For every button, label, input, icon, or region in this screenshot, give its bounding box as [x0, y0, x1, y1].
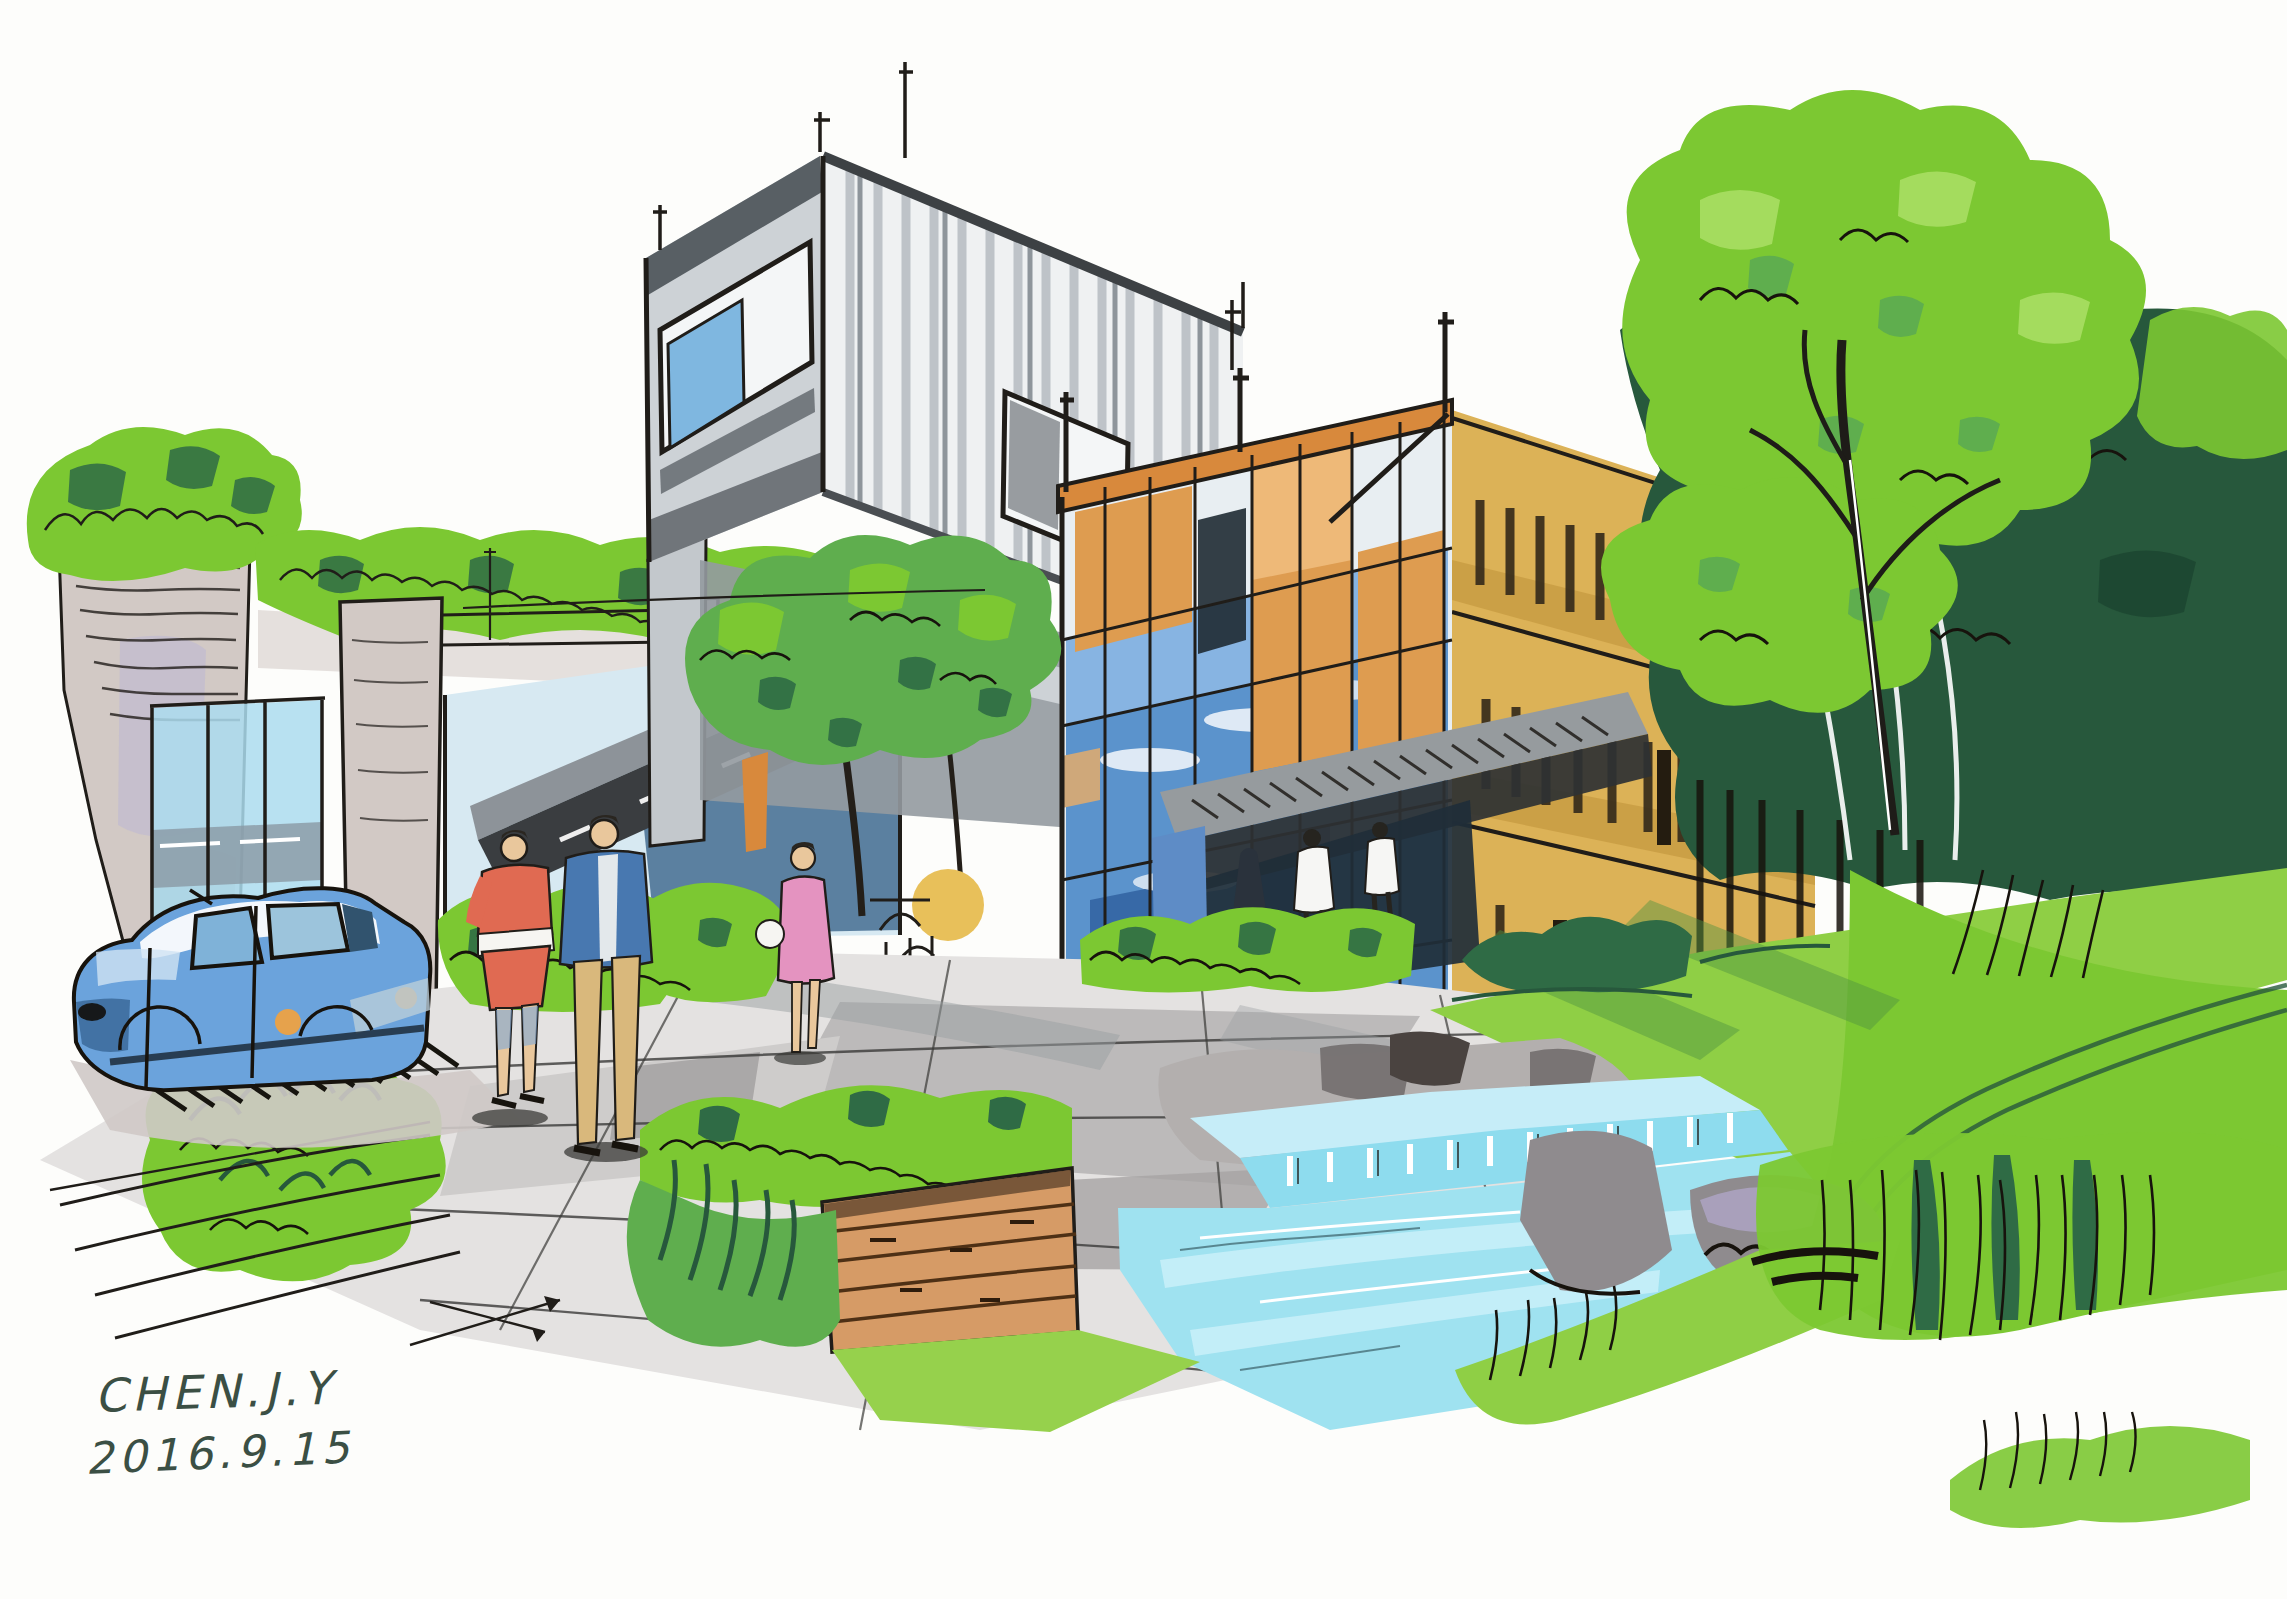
box-side-window-shade: [1008, 400, 1060, 530]
artwork-canvas: CHEN.J.Y 2016.9.15: [0, 0, 2287, 1599]
figure-head: [1372, 822, 1388, 838]
headlight-dark: [78, 1003, 106, 1021]
amber-light: [275, 1009, 301, 1035]
bag: [756, 920, 784, 948]
figure-head: [1303, 829, 1321, 847]
signature-name: CHEN.J.Y: [93, 1360, 340, 1423]
dress: [778, 876, 834, 983]
corner-foliage: [2137, 307, 2287, 459]
orange-trunk: [742, 752, 768, 852]
figure-body-white: [1294, 847, 1334, 913]
sketch-scene: CHEN.J.Y 2016.9.15: [0, 0, 2287, 1599]
yellow-door: [912, 869, 984, 941]
shadow: [472, 1109, 548, 1127]
car-window-front: [192, 908, 262, 968]
head: [501, 835, 527, 861]
dark-panel: [1198, 508, 1246, 654]
orange-panel-4: [1062, 748, 1100, 808]
shirt-stripe: [598, 854, 618, 962]
glass-band: [152, 822, 322, 888]
shorts: [482, 946, 550, 1010]
shadow: [774, 1051, 826, 1065]
head: [590, 820, 618, 848]
stone-dark-rock: [1390, 1031, 1470, 1085]
figure-body-white: [1365, 838, 1399, 895]
head: [791, 846, 815, 870]
car-window-rear: [268, 904, 348, 958]
